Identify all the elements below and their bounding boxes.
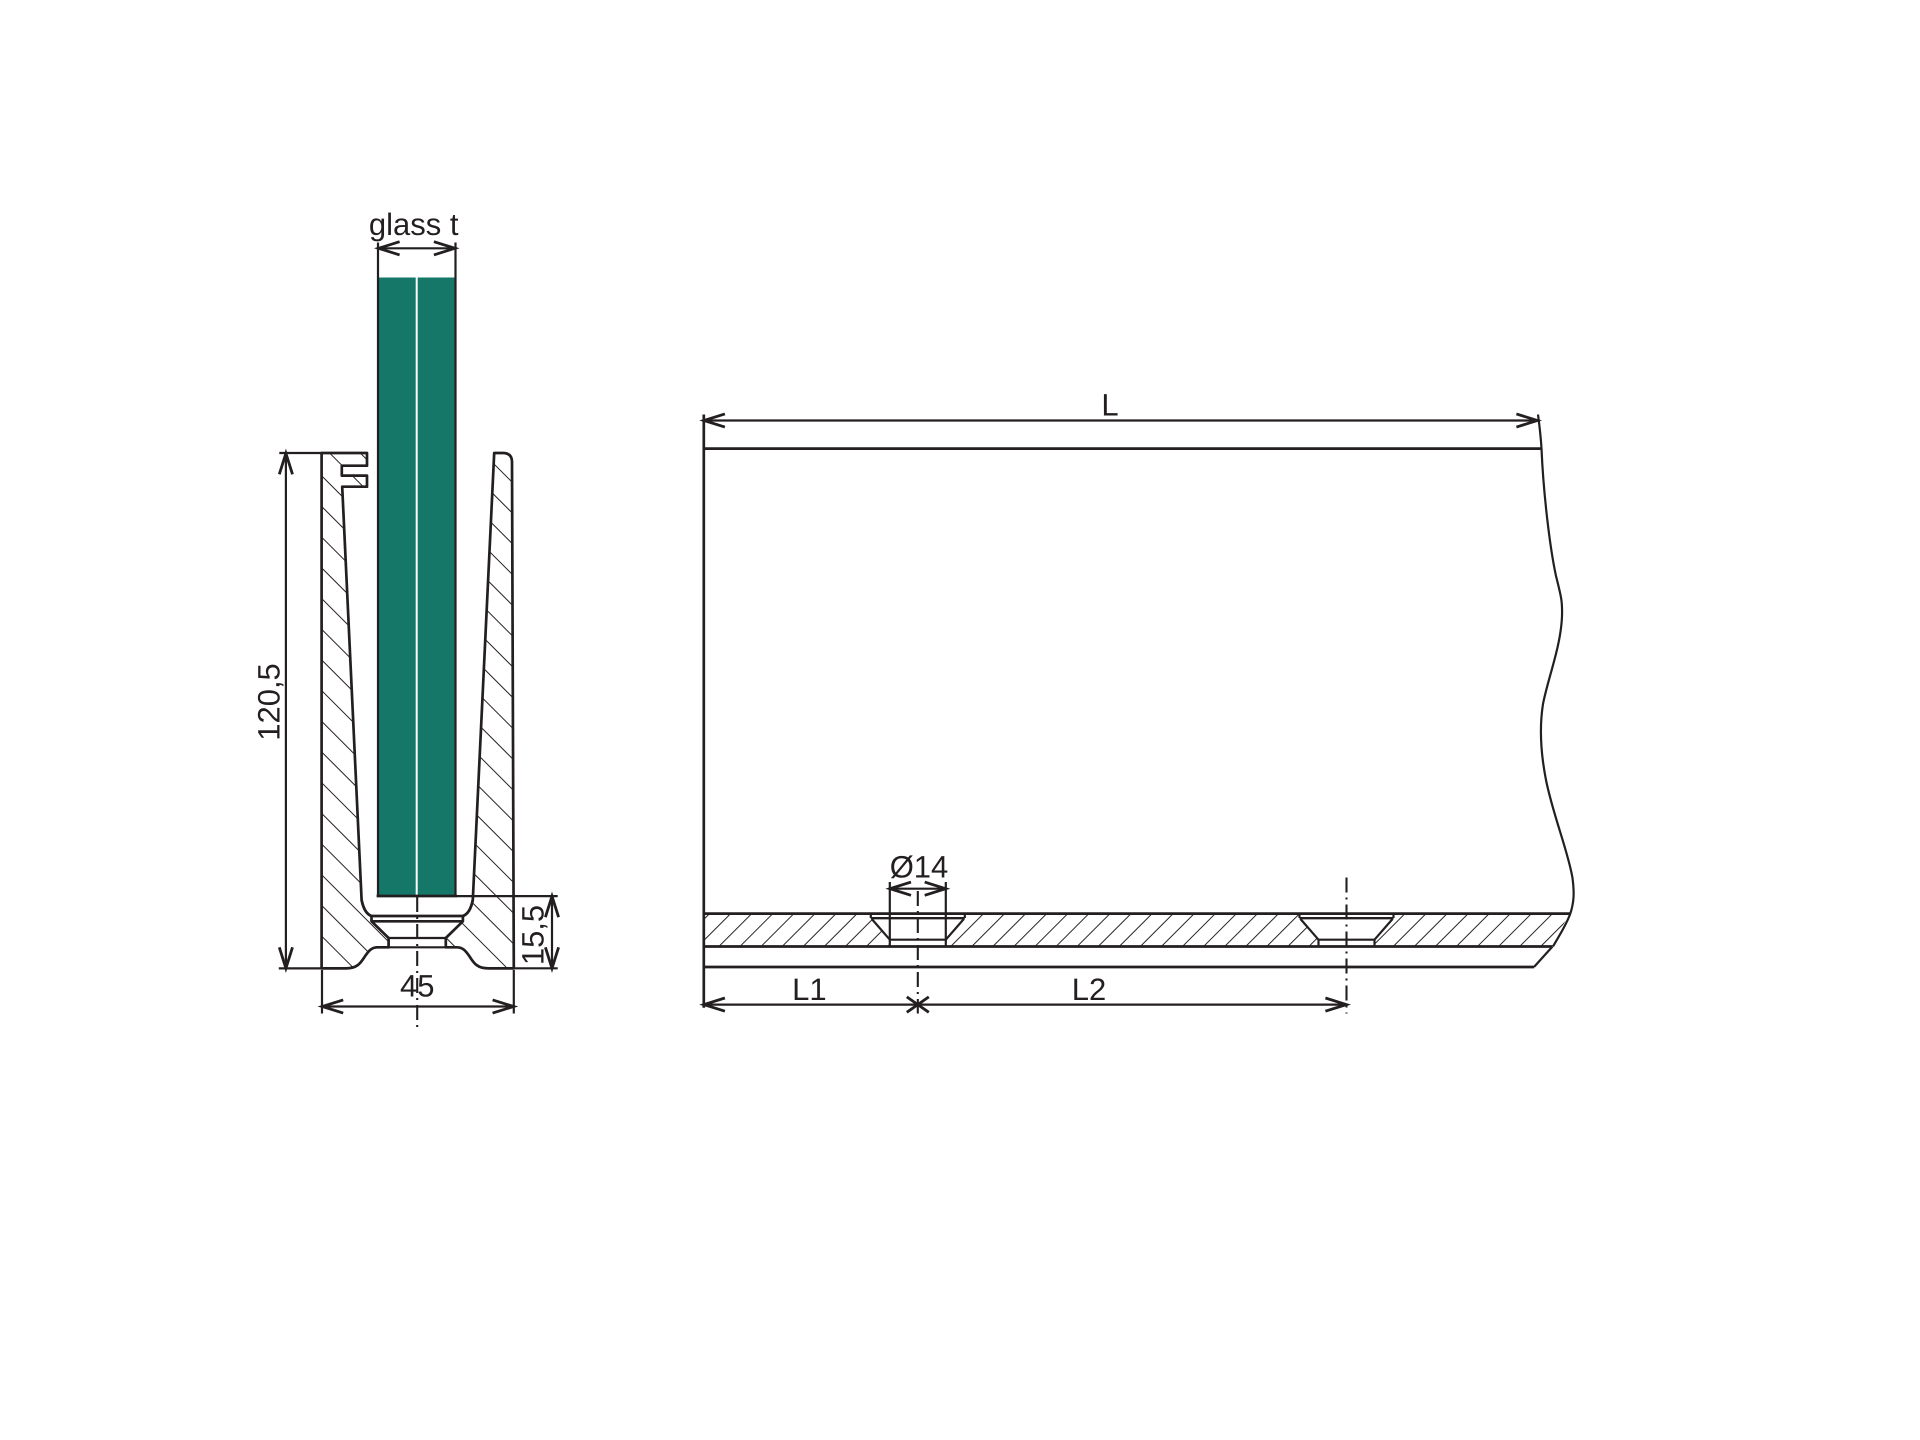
svg-text:L2: L2 [1072,972,1106,1007]
svg-text:glass t: glass t [369,207,459,242]
svg-text:L: L [1101,387,1118,422]
svg-text:L1: L1 [792,972,826,1007]
svg-text:45: 45 [400,969,434,1004]
svg-text:120,5: 120,5 [252,663,287,741]
svg-text:Ø14: Ø14 [890,850,949,885]
svg-text:15,5: 15,5 [516,905,551,965]
